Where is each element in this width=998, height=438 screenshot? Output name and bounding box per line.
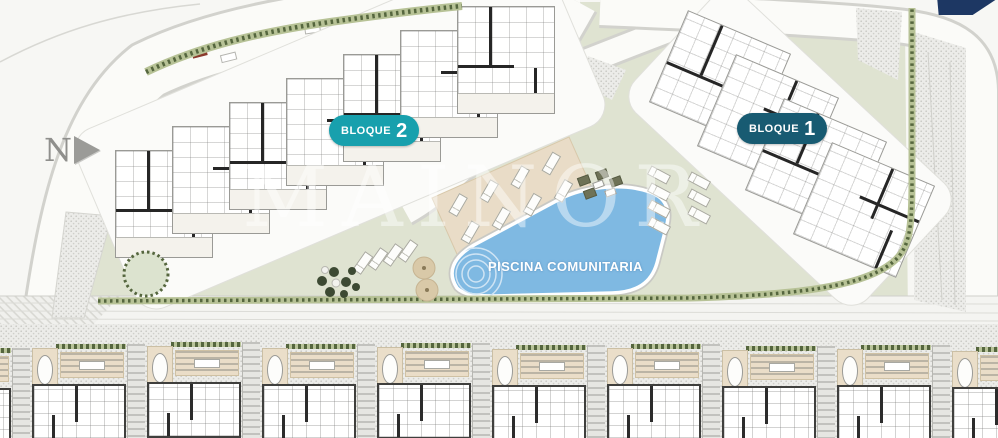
bloque1-badge-label: BLOQUE [749, 123, 799, 135]
interior-wall [512, 416, 515, 438]
terrace [635, 352, 699, 378]
hedge-strip [631, 344, 701, 349]
interior-wall [190, 384, 193, 420]
interior-wall [458, 65, 514, 68]
terrace [116, 237, 212, 257]
townhouse-unit [605, 344, 720, 438]
hedge-strip [861, 345, 931, 350]
bloque1-badge: BLOQUE 1 [737, 113, 827, 144]
interior-wall [972, 418, 975, 438]
bloque2-badge-number: 2 [396, 121, 407, 141]
townhouse-unit [490, 345, 605, 438]
terrace [458, 93, 554, 113]
townhouse-unit [0, 348, 30, 438]
rooms [837, 385, 931, 438]
hedge-strip [976, 347, 998, 352]
driveway [357, 344, 375, 438]
rooms [722, 386, 816, 438]
bloque2-badge: BLOQUE 2 [329, 115, 419, 146]
interior-wall [147, 151, 150, 209]
interior-wall [167, 413, 170, 436]
outdoor-table-icon [654, 361, 680, 370]
hedge-strip [286, 344, 356, 349]
driveway [587, 345, 605, 438]
interior-wall [397, 414, 400, 437]
interior-wall [666, 61, 726, 89]
interior-wall [765, 388, 768, 424]
hedge-strip [171, 342, 241, 347]
rooms [492, 385, 586, 438]
driveway [702, 344, 720, 438]
interior-wall [116, 209, 172, 212]
terrace [980, 355, 998, 381]
interior-wall [282, 415, 285, 438]
driveway [242, 342, 260, 438]
interior-wall [489, 7, 492, 65]
terrace [60, 352, 124, 378]
rooms [377, 383, 471, 438]
interior-wall [859, 196, 919, 224]
interior-wall [700, 25, 724, 76]
terrace [290, 352, 354, 378]
townhouse-unit [145, 342, 260, 438]
driveway [817, 346, 835, 438]
rooms [32, 384, 126, 438]
townhouse-unit [950, 347, 998, 438]
terrace [865, 353, 929, 379]
terrace [175, 350, 239, 376]
outdoor-table-icon [79, 361, 105, 370]
north-indicator: N [44, 134, 100, 166]
interior-wall [305, 386, 308, 422]
bloque2-badge-label: BLOQUE [341, 125, 391, 137]
interior-wall [762, 149, 822, 177]
interior-wall [52, 415, 55, 438]
rooms [952, 387, 998, 438]
townhouse-unit [375, 343, 490, 438]
terrace [405, 351, 469, 377]
outdoor-table-icon [539, 362, 565, 371]
terrace [0, 356, 9, 382]
rooms [607, 384, 701, 438]
interior-wall [880, 387, 883, 423]
hedge-strip [516, 345, 586, 350]
outdoor-table-icon [769, 363, 795, 372]
interior-wall [420, 385, 423, 421]
hedge-strip [56, 344, 126, 349]
driveway [472, 343, 490, 438]
interior-wall [75, 386, 78, 422]
interior-wall [650, 386, 653, 422]
hedge-strip [746, 346, 816, 351]
rooms [147, 382, 241, 438]
townhouse-unit [720, 346, 835, 438]
bloque1-badge-number: 1 [804, 119, 815, 139]
watermark: MAINOR [242, 148, 711, 246]
north-label: N [44, 134, 72, 166]
site-plan-screenshot: { "north_indicator": { "label": "N" }, "… [0, 0, 998, 438]
outdoor-table-icon [309, 361, 335, 370]
outdoor-table-icon [884, 362, 910, 371]
terrace [520, 353, 584, 379]
corner-ribbon [929, 0, 996, 15]
pool-label: PISCINA COMUNITARIA [463, 259, 668, 274]
north-arrow-icon [74, 136, 100, 164]
interior-wall [535, 387, 538, 423]
apartment-unit [457, 6, 555, 114]
interior-wall [857, 416, 860, 438]
interior-wall [627, 415, 630, 438]
terrace [750, 354, 814, 380]
interior-wall [874, 230, 893, 269]
hedge-strip [401, 343, 471, 348]
rooms [0, 388, 11, 438]
rooms [262, 384, 356, 438]
driveway [932, 345, 950, 438]
outdoor-table-icon [424, 360, 450, 369]
outdoor-table-icon [194, 359, 220, 368]
driveway [12, 348, 30, 438]
townhouse-unit [30, 344, 145, 438]
driveway [127, 344, 145, 438]
interior-wall [742, 417, 745, 438]
hedge-strip [0, 348, 11, 353]
townhouse-unit [835, 345, 950, 438]
townhouse-unit [260, 344, 375, 438]
interior-wall [375, 55, 378, 113]
